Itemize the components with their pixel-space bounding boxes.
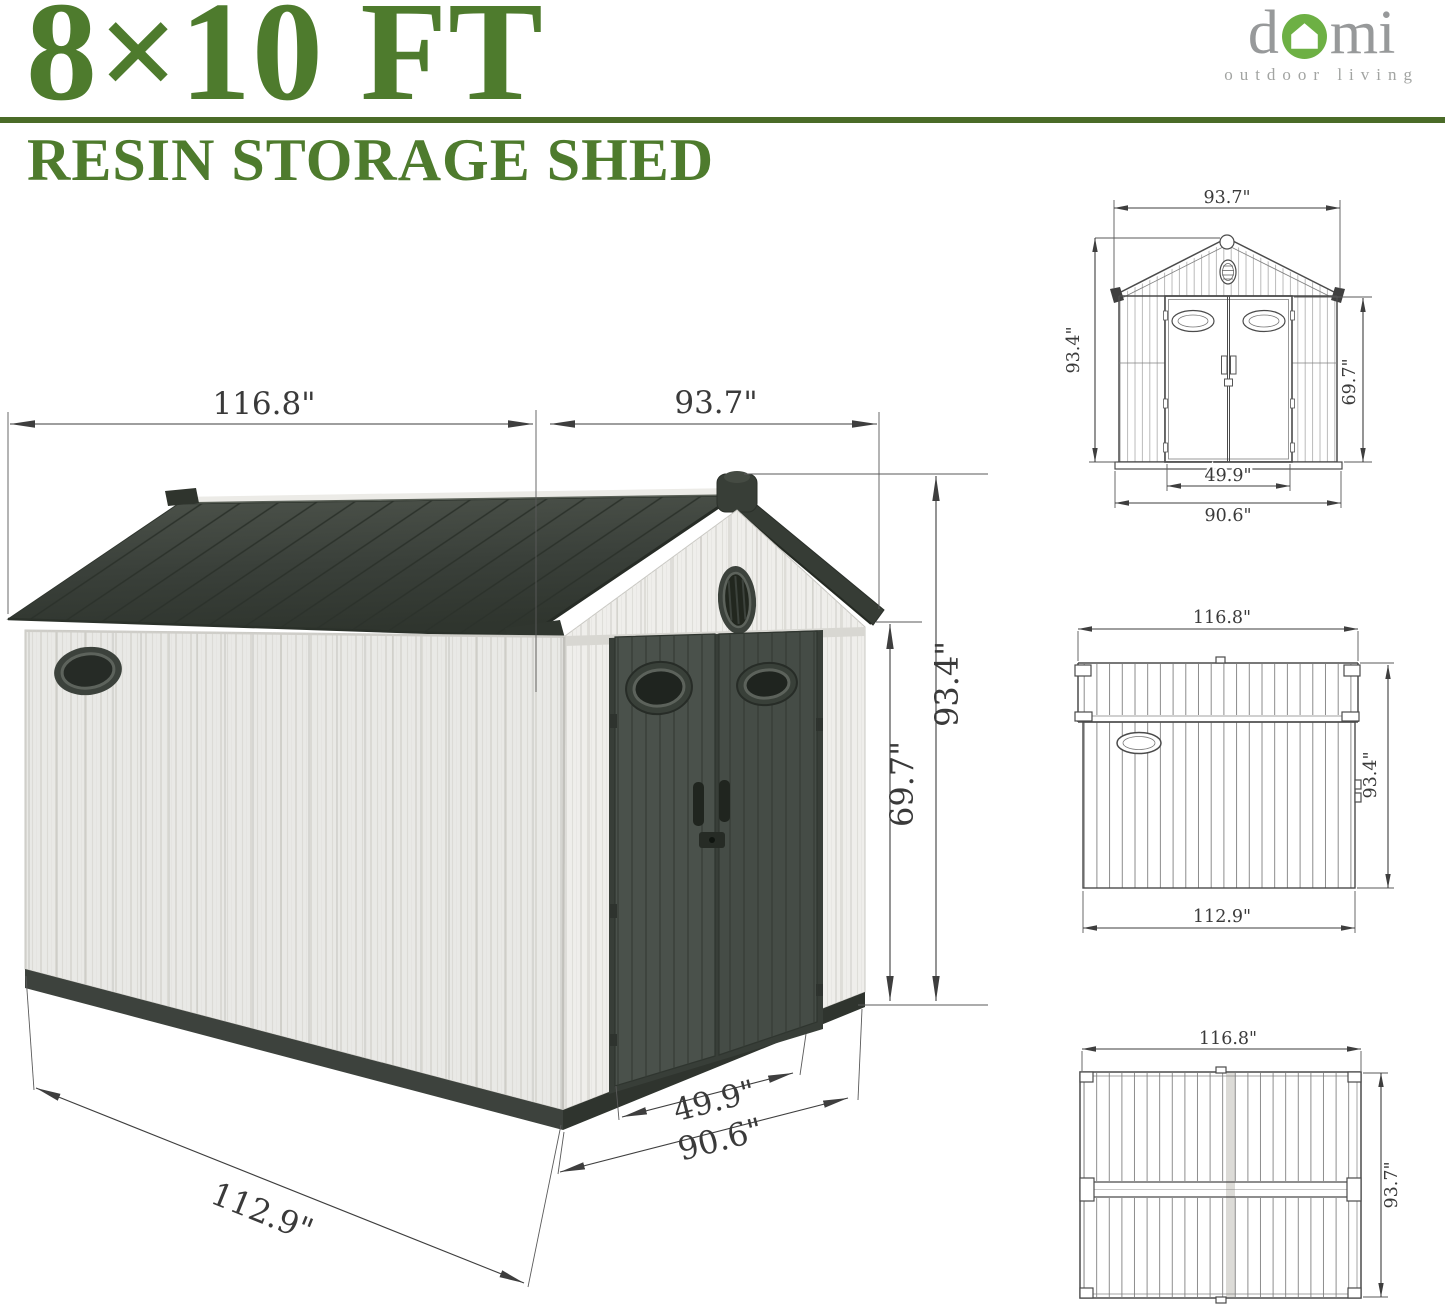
latch: [1225, 379, 1233, 386]
ridge-cap-right: [1347, 1178, 1361, 1201]
fv-dim-door-width: 49.9": [1204, 466, 1251, 486]
front-view-lines: [1108, 235, 1346, 469]
product-dimension-sheet: 8×10 FT d mi outdoor living RESIN STORAG…: [0, 0, 1445, 1304]
dim-base-depth: 112.9": [206, 1174, 319, 1249]
handle-left: [1222, 356, 1228, 374]
sv-dim-width-top: 116.8": [1193, 608, 1251, 628]
dim-peak-height: 93.4": [928, 641, 966, 727]
brand-logo: d mi outdoor living: [1224, 2, 1419, 85]
shed-3d-render: [8, 471, 884, 1130]
front-elevation-drawing: 93.7" 93.4" 69.7" 49.9" 90.6": [1060, 185, 1390, 530]
tv-dim-width: 93.7": [1382, 1161, 1402, 1208]
dim-wall-height: 69.7": [883, 741, 921, 827]
eave-cap-left: [1110, 287, 1124, 303]
eave-cap-right: [1331, 287, 1345, 303]
brand-name-post: mi: [1330, 2, 1395, 64]
brand-name-pre: d: [1248, 2, 1279, 64]
roof-plan-drawing: 116.8" 93.7": [1070, 1030, 1405, 1304]
ridge-cap-end: [165, 488, 199, 506]
fv-dim-height-total: 93.4": [1064, 326, 1084, 373]
top-nub: [1216, 1067, 1226, 1073]
page-subtitle: RESIN STORAGE SHED: [27, 126, 714, 195]
brand-tagline: outdoor living: [1224, 65, 1419, 85]
finial: [1220, 235, 1234, 249]
fv-dim-door-height: 69.7": [1340, 358, 1360, 405]
side-wall: [25, 630, 565, 1110]
roof-finial: [717, 471, 757, 512]
roof-cap-left: [1075, 665, 1091, 676]
front-view-vent: [1220, 260, 1236, 284]
sv-dim-base-depth: 112.9": [1193, 907, 1251, 927]
top-view-lines: [1080, 1067, 1361, 1303]
side-view-vent: [1117, 733, 1161, 754]
roof-foot-left: [1075, 712, 1092, 721]
front-view-doors: [1164, 296, 1295, 462]
bottom-nub: [1216, 1297, 1226, 1303]
brand-name: d mi: [1248, 2, 1395, 64]
page-title: 8×10 FT: [26, 0, 544, 122]
side-view-lines: [1075, 657, 1361, 888]
hero-shed-illustration: 116.8" 93.7" 93.4" 69.7" 112.9" 49.9" 90…: [0, 384, 1010, 1304]
dim-front-width: 93.7": [674, 385, 757, 421]
handle-right: [1231, 356, 1237, 374]
roof-cap-right: [1344, 665, 1360, 676]
green-divider-rule: [0, 117, 1445, 123]
sv-dim-height-total: 93.4": [1361, 751, 1381, 798]
double-doors: [609, 630, 823, 1094]
roof-foot-right: [1342, 712, 1359, 721]
house-in-circle-icon: [1281, 13, 1328, 60]
fv-dim-width-top: 93.7": [1203, 188, 1250, 208]
tv-dim-length: 116.8": [1199, 1030, 1257, 1049]
ridge-cap-left: [1080, 1178, 1094, 1201]
side-elevation-drawing: 116.8" 93.4" 112.9": [1070, 595, 1405, 940]
dim-roof-length: 116.8": [212, 386, 315, 422]
ridge-nub: [1216, 657, 1225, 663]
fv-dim-base-width: 90.6": [1204, 506, 1251, 526]
